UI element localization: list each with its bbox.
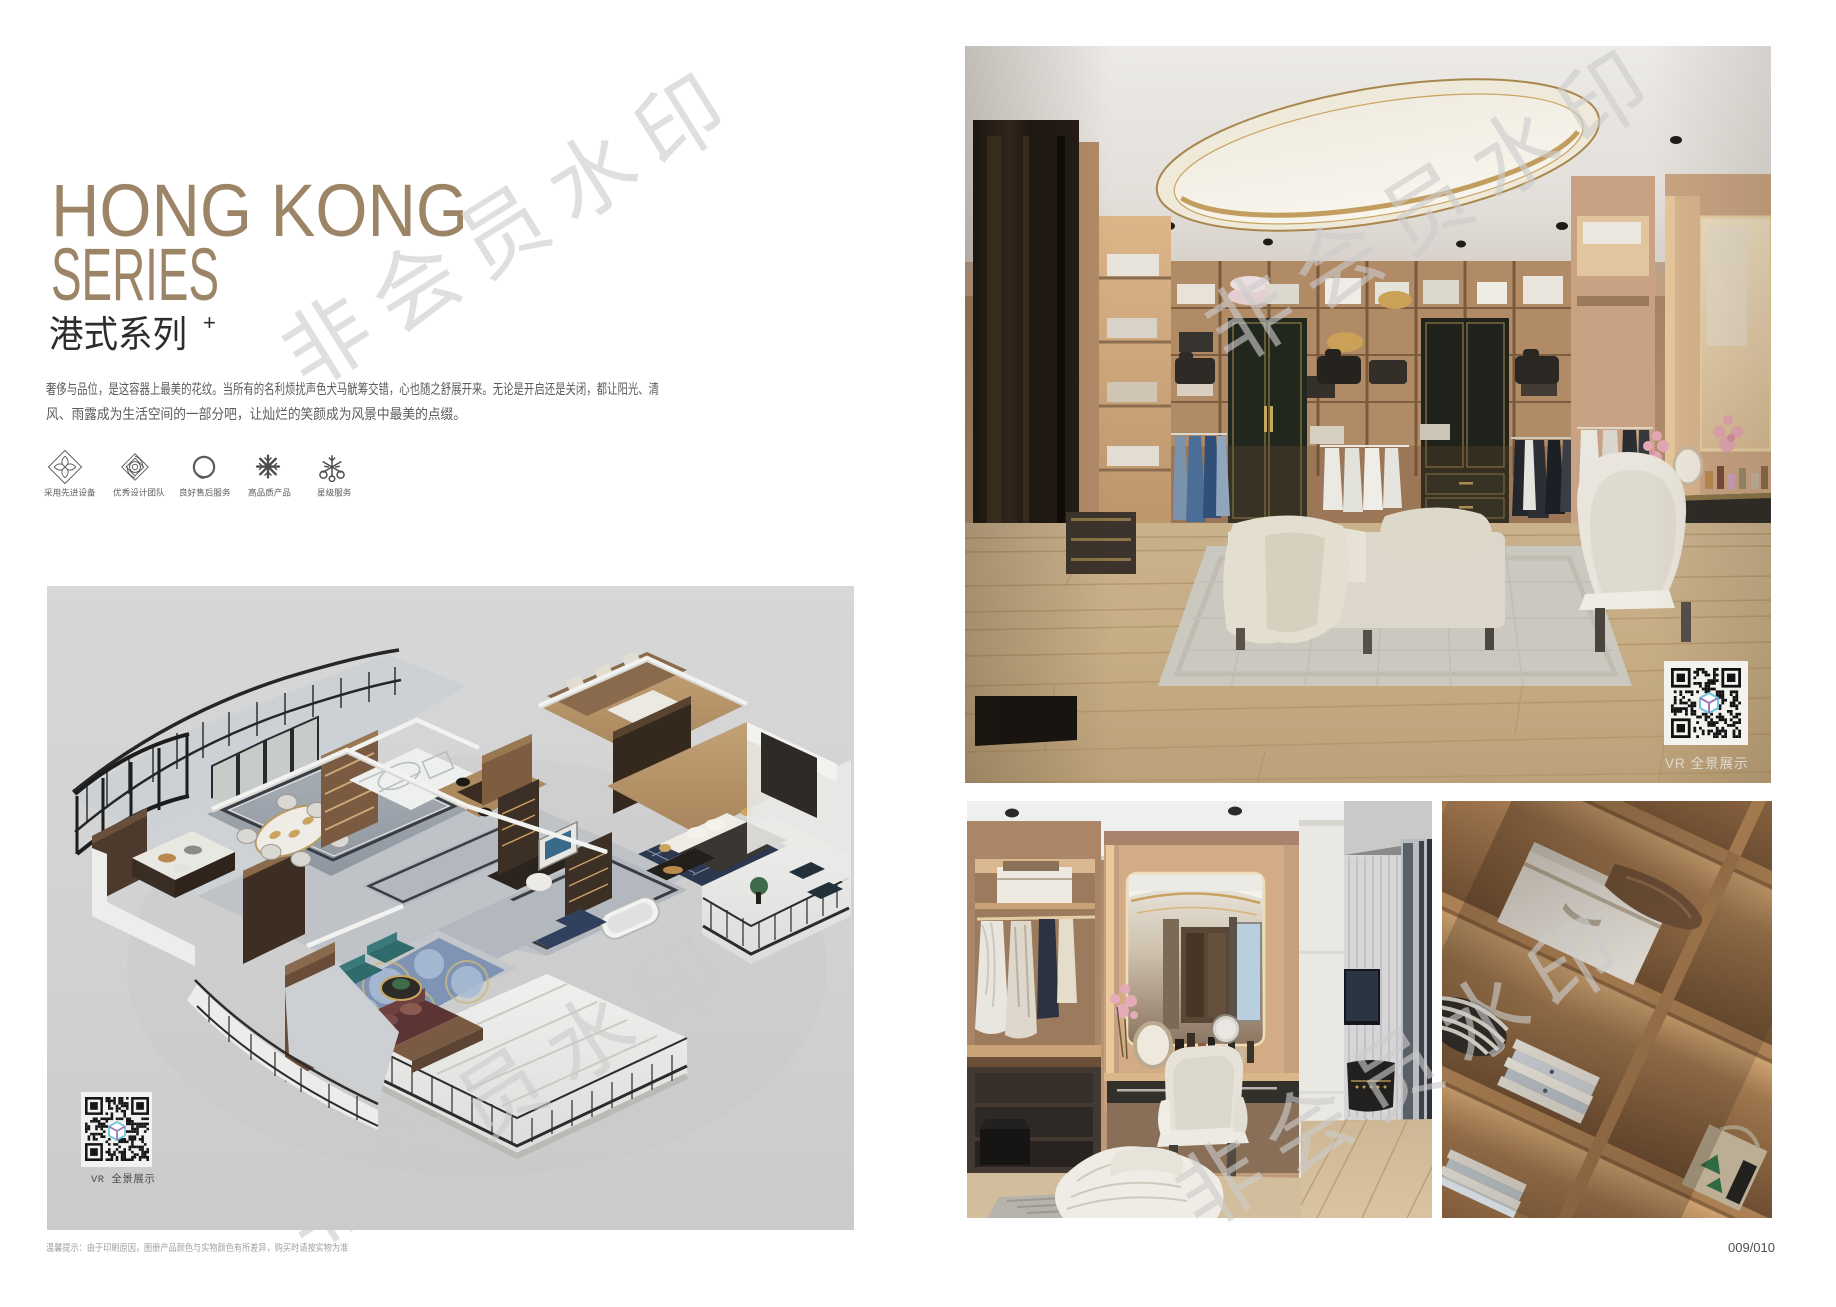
svg-text:VR 全景展示: VR 全景展示	[91, 1172, 155, 1186]
svg-text:高品质产品: 高品质产品	[248, 487, 291, 498]
svg-text:奢侈与品位，是这容器上最美的花纹。当所有的名利烦扰声色犬马觥: 奢侈与品位，是这容器上最美的花纹。当所有的名利烦扰声色犬马觥筹交错，心也随之舒展…	[46, 381, 659, 397]
svg-text:VR 全景展示: VR 全景展示	[1665, 755, 1749, 771]
svg-text:+: +	[203, 310, 216, 335]
svg-text:风、雨露成为生活空间的一部分吧，让灿烂的笑颜成为风景中最美的: 风、雨露成为生活空间的一部分吧，让灿烂的笑颜成为风景中最美的点缀。	[46, 406, 466, 422]
svg-text:港式系列: 港式系列	[49, 314, 187, 355]
svg-text:SERIES: SERIES	[51, 233, 219, 316]
svg-text:优秀设计团队: 优秀设计团队	[113, 487, 165, 498]
svg-text:良好售后服务: 良好售后服务	[179, 487, 231, 498]
svg-text:星级服务: 星级服务	[317, 487, 352, 498]
svg-text:采用先进设备: 采用先进设备	[44, 487, 96, 498]
